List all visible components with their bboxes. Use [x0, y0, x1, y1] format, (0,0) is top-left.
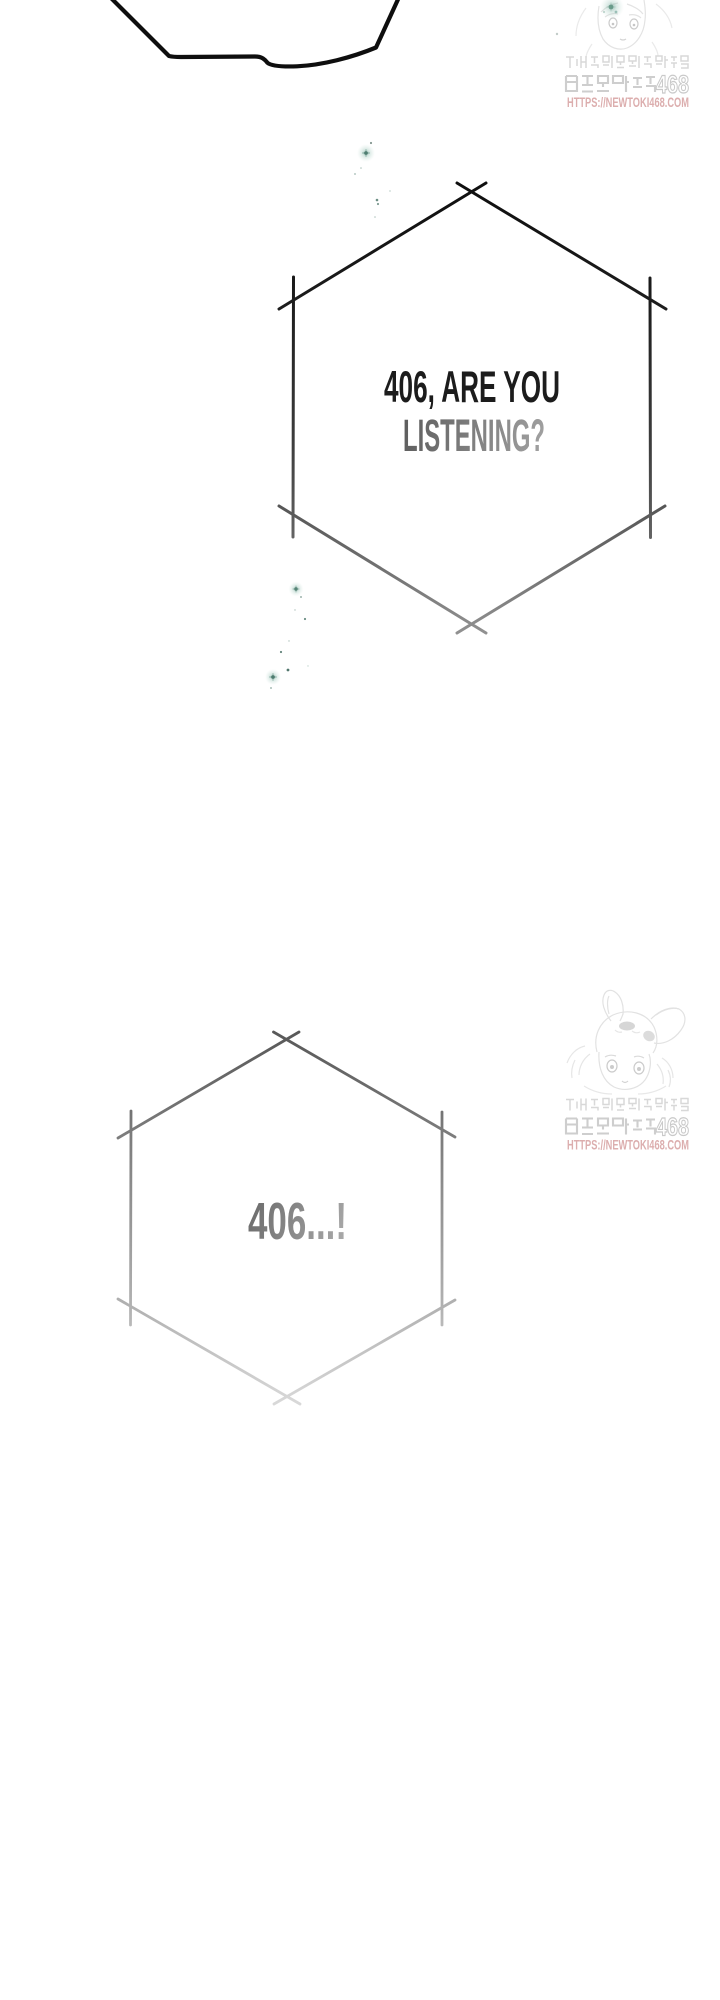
svg-text:406, ARE YOU: 406, ARE YOU — [384, 363, 560, 412]
svg-text:406...!: 406...! — [248, 1192, 347, 1250]
svg-text:LISTENING?: LISTENING? — [403, 410, 545, 461]
svg-text:HTTPS://NEWTOKI468.COM: HTTPS://NEWTOKI468.COM — [567, 95, 689, 110]
